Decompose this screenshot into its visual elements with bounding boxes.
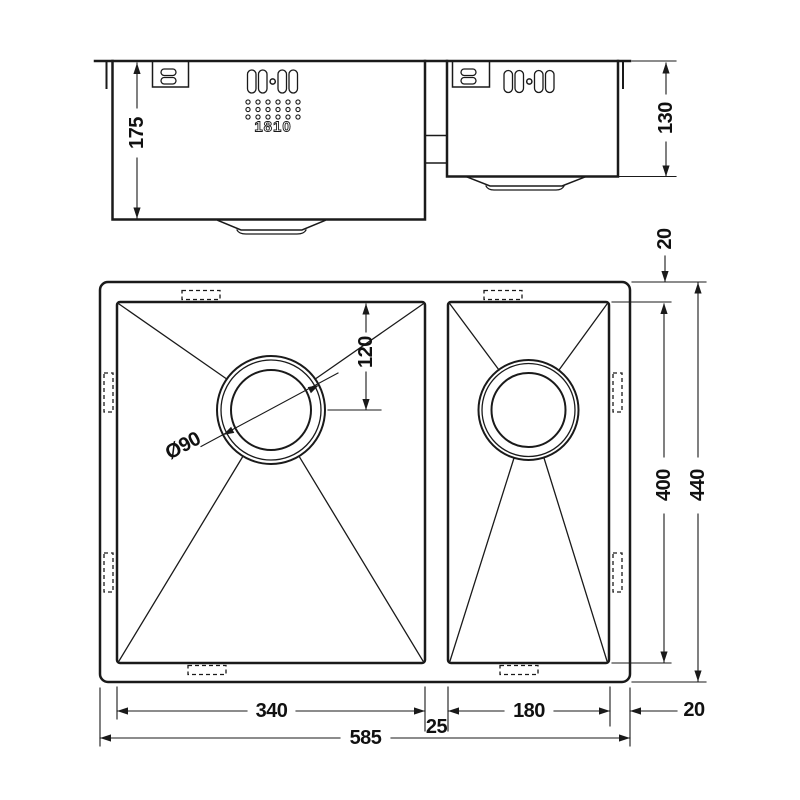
- dim-130-label: 130: [655, 102, 677, 134]
- brand-logo-1810: 1810: [254, 119, 291, 136]
- dim-440-label: 440: [687, 469, 709, 501]
- sink-technical-drawing: 1810 175 130: [0, 0, 800, 800]
- dim-20-bottom-label: 20: [683, 699, 705, 721]
- dim-585-label: 585: [350, 727, 382, 749]
- dim-175-label: 175: [126, 117, 148, 149]
- dim-120-label: 120: [355, 336, 377, 368]
- dim-340-label: 340: [256, 700, 288, 722]
- dim-180-label: 180: [513, 700, 545, 722]
- dim-400-label: 400: [653, 469, 675, 501]
- dim-20-top-label: 20: [654, 228, 676, 250]
- canvas-background: [0, 0, 800, 800]
- dim-25-label: 25: [426, 716, 448, 738]
